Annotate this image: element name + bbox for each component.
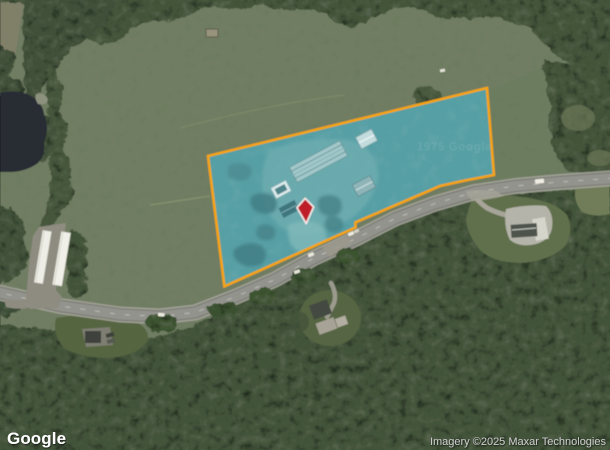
svg-text:Imagery ©2025 Maxar Technologi: Imagery ©2025 Maxar Technologies <box>430 436 607 448</box>
svg-text:Google: Google <box>7 429 66 448</box>
